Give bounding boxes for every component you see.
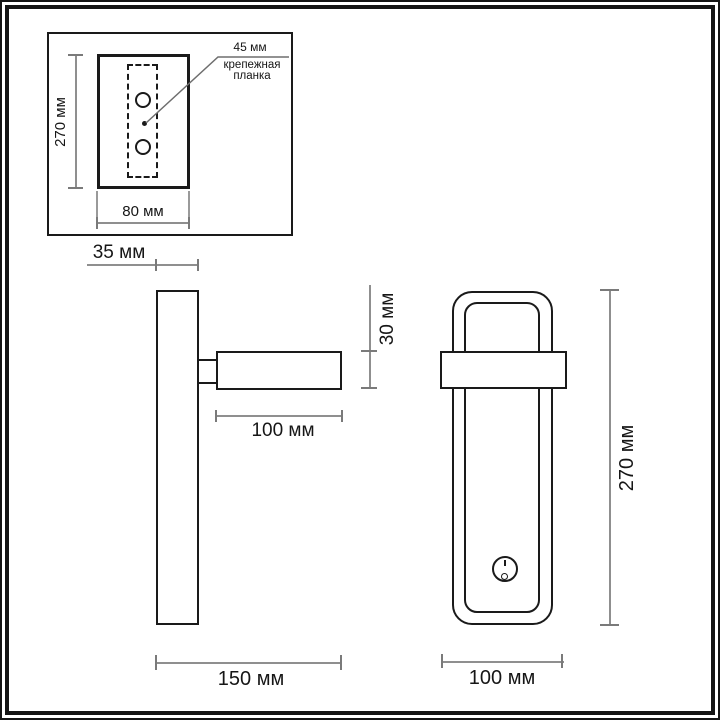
head-height-dim-label: 30 мм <box>377 283 397 355</box>
drawing-canvas: 45 мм крепежная планка 270 мм 80 мм 35 м… <box>0 0 720 720</box>
inset-width-dim-line <box>97 222 189 224</box>
head-length-dim-label: 100 мм <box>233 420 333 442</box>
backplate-depth-dim-tick-left <box>155 259 157 271</box>
head-length-dim-tick-right <box>341 410 343 422</box>
head-length-dim-tick-left <box>215 410 217 422</box>
inset-height-dim-tick-top <box>68 54 83 56</box>
total-depth-dim-tick-right <box>340 655 342 670</box>
inset-height-dim-tick-bottom <box>68 187 83 189</box>
front-width-dim-tick-right <box>561 654 563 668</box>
backplate-depth-dim-label: 35 мм <box>79 242 159 264</box>
front-height-dim-tick-bottom <box>600 624 619 626</box>
head-length-dim-line <box>216 415 343 417</box>
sideview-neck <box>199 359 217 384</box>
head-height-dim-tick-top <box>361 350 377 352</box>
inset-height-dim-label: 270 мм <box>52 87 68 157</box>
switch-off-mark <box>501 573 508 580</box>
sideview-backplate <box>156 290 199 625</box>
inset-width-dim-label: 80 мм <box>103 203 183 220</box>
inset-height-dim-line <box>75 55 77 189</box>
front-height-dim-label: 270 мм <box>616 412 636 504</box>
front-width-dim-line <box>442 661 564 663</box>
callout-name-line2: планка <box>233 70 270 82</box>
front-height-dim-line <box>609 290 611 626</box>
sideview-lamp-head <box>216 351 342 390</box>
head-height-dim-tick-bottom <box>361 387 377 389</box>
callout-size-label: 45 мм <box>210 40 290 54</box>
backplate-depth-dim-line <box>87 264 199 266</box>
inset-width-dim-tick-right <box>188 217 190 229</box>
frontview-head-band <box>440 351 567 389</box>
front-width-dim-tick-left <box>441 654 443 668</box>
front-width-dim-label: 100 мм <box>442 667 562 690</box>
total-depth-dim-line <box>156 662 342 664</box>
total-depth-dim-label: 150 мм <box>186 668 316 691</box>
callout-name-label: крепежная планка <box>207 60 297 82</box>
backplate-depth-dim-tick-right <box>197 259 199 271</box>
inset-width-dim-tick-left <box>96 217 98 229</box>
front-height-dim-tick-top <box>600 289 619 291</box>
head-height-dim-line <box>369 285 371 389</box>
total-depth-dim-tick-left <box>155 655 157 670</box>
switch-on-mark <box>504 560 506 566</box>
screw-hole-bottom <box>135 139 151 155</box>
